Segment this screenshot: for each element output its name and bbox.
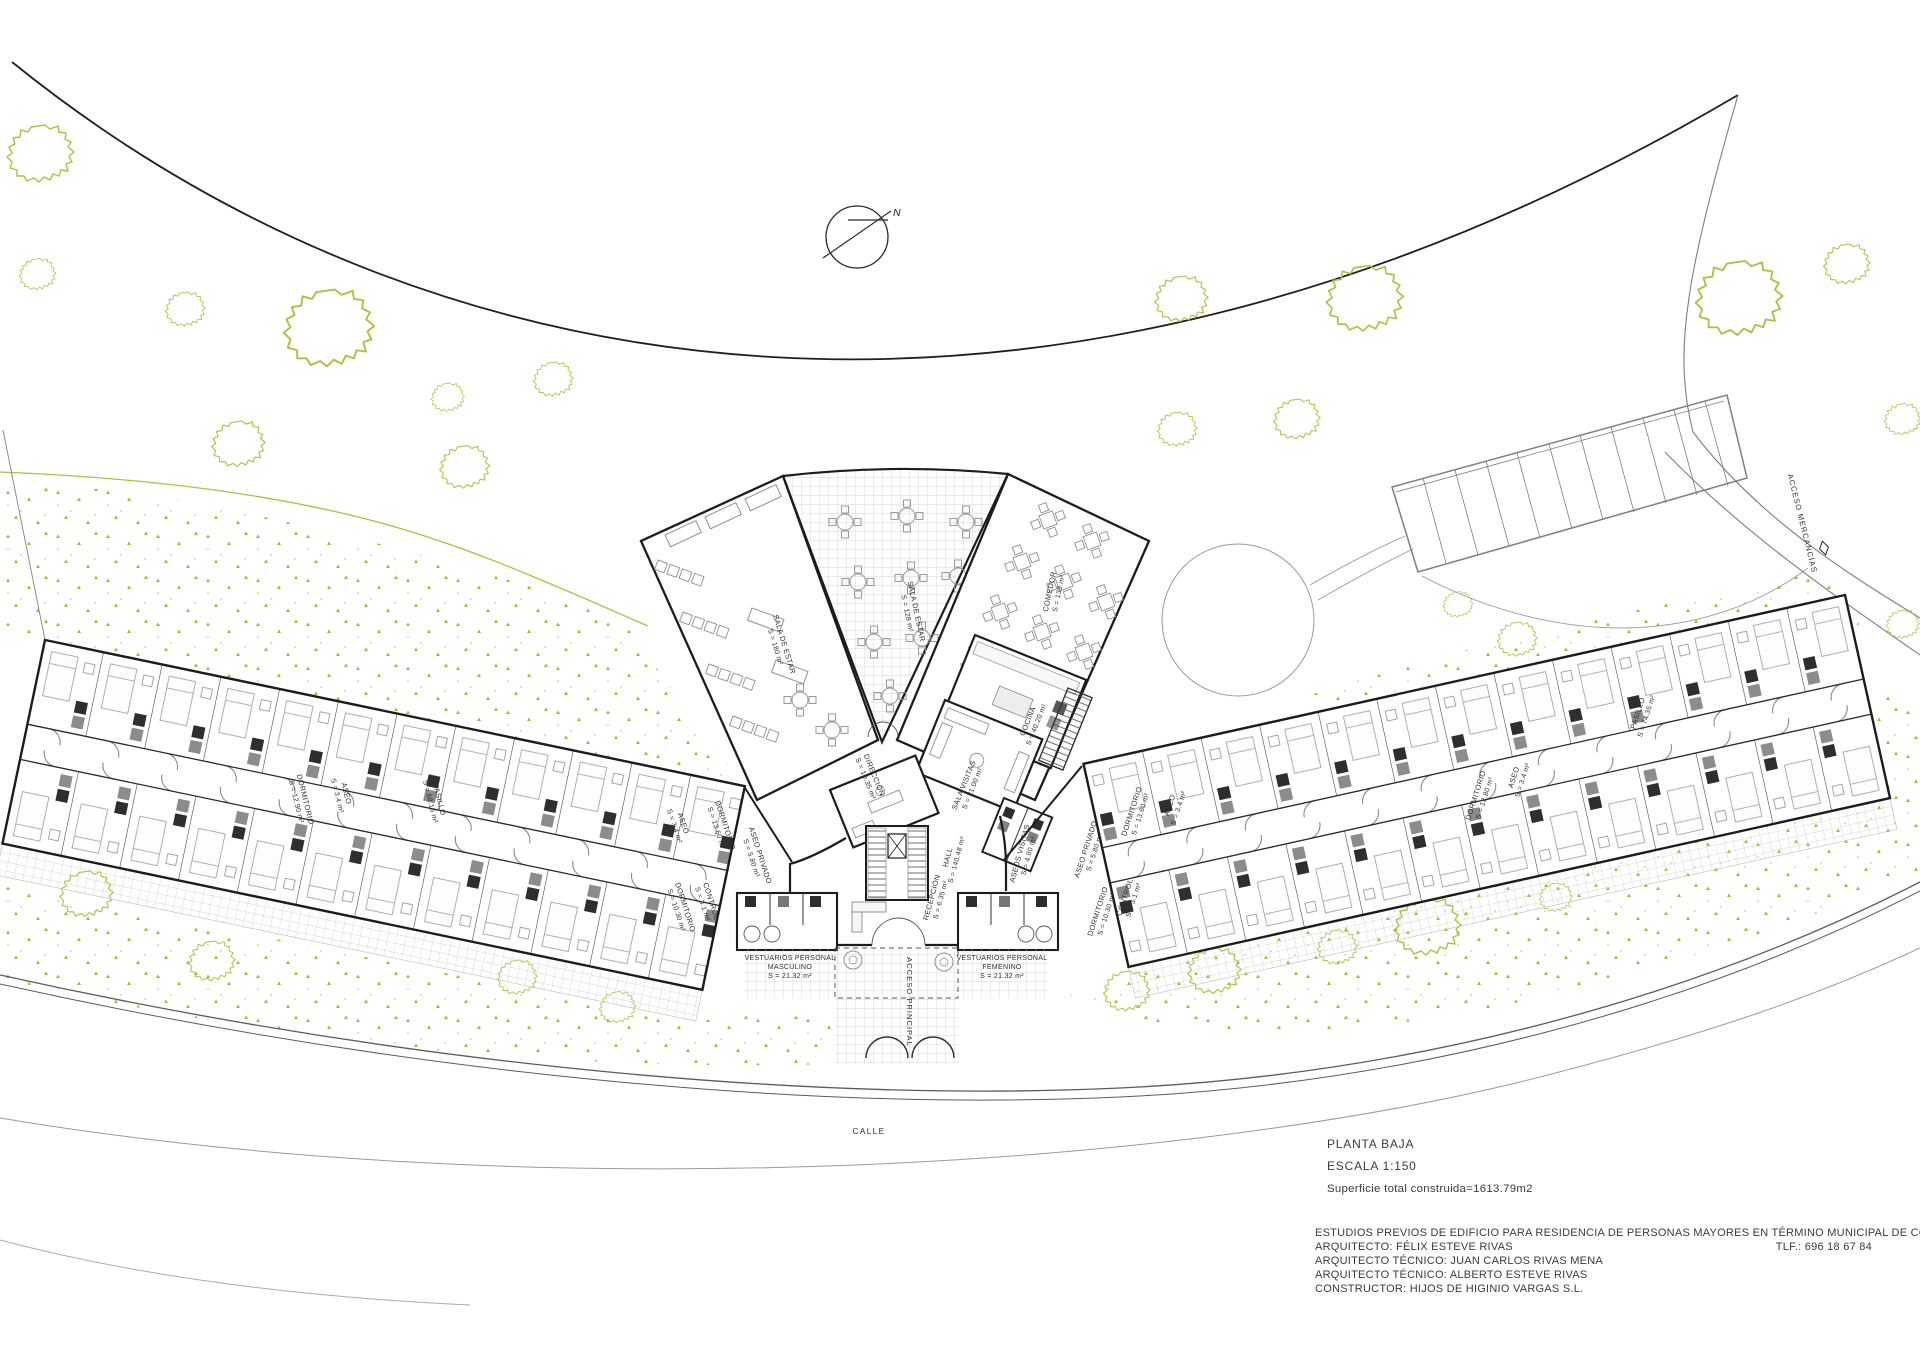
plan-scale: ESCALA 1:150: [1327, 1159, 1417, 1173]
project-description: ESTUDIOS PREVIOS DE EDIFICIO PARA RESIDE…: [1315, 1226, 1920, 1239]
svg-text:VESTUARIOS PERSONAL: VESTUARIOS PERSONAL: [957, 955, 1048, 962]
parking-stalls: [1423, 401, 1728, 563]
architect-credit: ARQUITECTO: FÉLIX ESTEVE RIVAS: [1315, 1240, 1513, 1253]
svg-text:MASCULINO: MASCULINO: [768, 964, 813, 971]
tree: [19, 259, 56, 290]
plaza-circle: [1162, 544, 1314, 696]
tree: [431, 383, 465, 412]
tree: [440, 446, 490, 489]
svg-text:S = 21.32 m²: S = 21.32 m²: [980, 973, 1024, 980]
title-block: PLANTA BAJA ESCALA 1:150 Superficie tota…: [1327, 1137, 1533, 1195]
plan-total-area: Superficie total construida=1613.79m2: [1327, 1183, 1533, 1195]
site-boundary-arc: [12, 62, 1738, 359]
bush: [1443, 592, 1473, 618]
svg-text:S = 21.32 m²: S = 21.32 m²: [768, 973, 812, 980]
parking-area: [1392, 395, 1747, 572]
tree: [284, 290, 374, 367]
tree: [1155, 276, 1209, 322]
plan-title: PLANTA BAJA: [1327, 1137, 1414, 1151]
street-corner-line: [0, 1240, 470, 1305]
staff-lockers-female: [958, 893, 1058, 950]
tree: [533, 362, 573, 396]
calle-label: CALLE: [853, 1127, 886, 1136]
north-arrow-icon: N: [823, 206, 901, 268]
technical-architect-credit-2: ARQUITECTO TÉCNICO: ALBERTO ESTEVE RIVAS: [1315, 1268, 1587, 1281]
acceso-principal-label: ACCESO PRINCIPAL: [905, 957, 914, 1047]
site-plan-canvas: N: [0, 0, 1920, 1356]
tree: [7, 125, 74, 182]
tree: [1696, 261, 1783, 335]
tree: [212, 421, 266, 467]
builder-credit: CONSTRUCTOR: HIJOS DE HIGINIO VARGAS S.L…: [1315, 1283, 1583, 1295]
floor-plan-page: N: [0, 0, 1920, 1356]
tree: [1157, 412, 1197, 446]
stair-elevator-core: [866, 826, 928, 900]
svg-text:FEMENINO: FEMENINO: [982, 964, 1022, 971]
acceso-mercancias-label: ACCESO MERCANCÍAS: [1786, 473, 1819, 574]
svg-text:VESTUARIOS PERSONAL: VESTUARIOS PERSONAL: [745, 955, 836, 962]
tree: [1823, 244, 1870, 284]
tree: [1884, 404, 1920, 435]
technical-architect-credit-1: ARQUITECTO TÉCNICO: JUAN CARLOS RIVAS ME…: [1315, 1254, 1603, 1267]
tree: [1326, 266, 1403, 332]
tree: [1273, 399, 1320, 439]
phone-number: TLF.: 696 18 67 84: [1776, 1241, 1872, 1253]
direction-arrow-icon: [1818, 540, 1830, 556]
credits-block: ESTUDIOS PREVIOS DE EDIFICIO PARA RESIDE…: [1315, 1226, 1920, 1295]
tree: [165, 292, 205, 326]
staff-lockers-male: [737, 893, 837, 950]
north-label: N: [893, 207, 901, 219]
